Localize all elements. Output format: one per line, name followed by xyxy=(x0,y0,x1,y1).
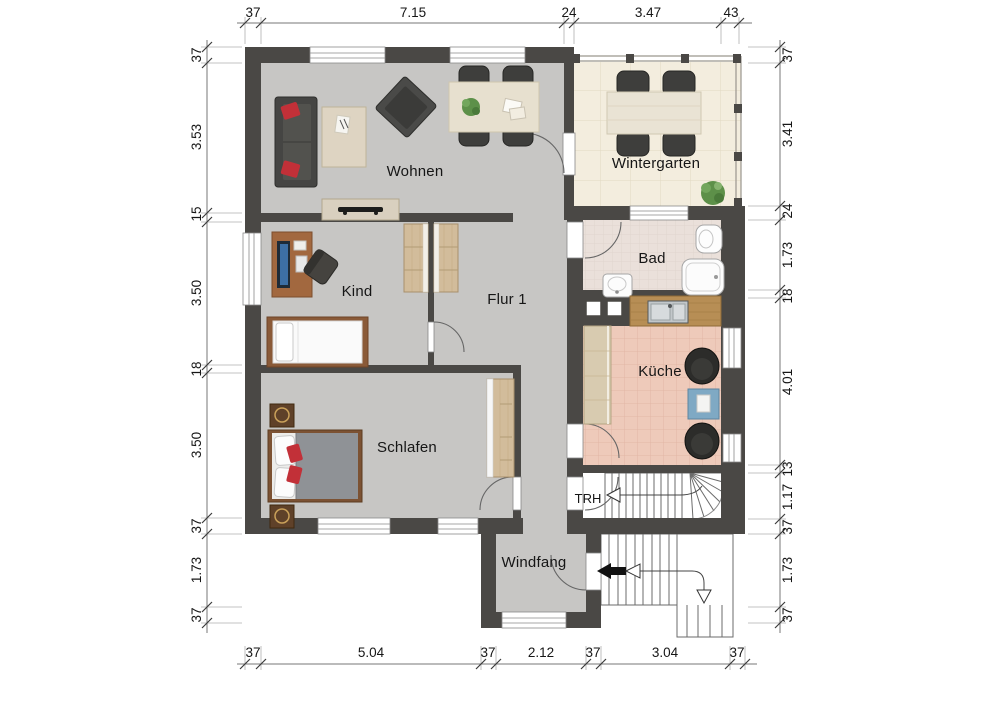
dim-right-5: 4.01 xyxy=(780,369,795,395)
dim-bottom-2: 37 xyxy=(480,645,495,660)
window-kueche-east-2 xyxy=(723,434,741,462)
dining-table xyxy=(449,82,539,132)
nightstand-top xyxy=(270,404,294,427)
window-bad-north xyxy=(630,206,688,220)
dim-top-0: 37 xyxy=(245,5,260,20)
room-label-bad: Bad xyxy=(638,250,665,267)
window-kind-west xyxy=(243,233,261,305)
flur-wardrobe-kind-side xyxy=(404,224,428,292)
wall-flur-east-1 xyxy=(567,206,583,222)
wall-wintergarten-lower xyxy=(564,175,574,206)
kitchen-side-table xyxy=(688,389,719,419)
wall-kind-flur-upper xyxy=(428,222,434,322)
dim-left-3: 3.50 xyxy=(189,280,204,306)
wall-south-segment xyxy=(496,518,523,534)
wall-flur-east-3 xyxy=(567,326,583,424)
wall-flur-east-2 xyxy=(567,258,583,290)
coffee-table xyxy=(322,107,366,167)
wall-flur-east-5 xyxy=(567,510,583,534)
dim-left-7: 1.73 xyxy=(189,557,204,583)
glass-post xyxy=(734,104,742,113)
dim-right-9: 1.73 xyxy=(780,557,795,583)
window-wohnen-north-1 xyxy=(310,47,385,63)
wall-south-trh xyxy=(567,518,745,534)
dim-left-8: 37 xyxy=(189,607,204,622)
window-schlafen-south-1 xyxy=(318,518,390,534)
room-label-kind: Kind xyxy=(342,283,373,300)
dim-labels-top: 37 7.15 24 3.47 43 xyxy=(245,5,738,20)
room-label-windfang: Windfang xyxy=(502,554,567,571)
glass-post xyxy=(734,198,742,206)
wall-windfang-south-left xyxy=(481,612,502,628)
kitchen-counter-west xyxy=(584,326,611,424)
window-windfang-south xyxy=(502,612,566,628)
bathroom-sink xyxy=(603,274,632,297)
bed-pillow xyxy=(276,323,293,361)
dim-right-8: 37 xyxy=(780,519,795,534)
wall-kind-flur-lower xyxy=(428,352,434,365)
dim-top-4: 43 xyxy=(723,5,738,20)
dim-bottom-6: 37 xyxy=(729,645,744,660)
glass-post xyxy=(733,54,741,63)
kids-bed xyxy=(267,317,368,367)
wall-wg-south-right xyxy=(688,206,745,220)
wall-schlafen-stub xyxy=(513,510,521,518)
window-wohnen-north-2 xyxy=(450,47,525,63)
window-kueche-east-1 xyxy=(723,328,741,368)
glass-post xyxy=(681,54,689,63)
wall-windfang-east-upper xyxy=(586,534,601,553)
shaft-left xyxy=(586,301,601,316)
dim-left-5: 3.50 xyxy=(189,432,204,458)
wintergarten-plant xyxy=(701,181,725,205)
kitchen-chair-1 xyxy=(685,348,719,384)
room-label-flur: Flur 1 xyxy=(487,291,527,308)
exterior-stairs xyxy=(601,534,733,637)
dim-left-4: 18 xyxy=(189,361,204,376)
nightstand-bottom xyxy=(270,505,294,528)
room-label-schlafen: Schlafen xyxy=(377,439,437,456)
flur-wardrobe-flur-side xyxy=(434,224,458,292)
bathtub xyxy=(682,259,724,295)
wall-windfang-west xyxy=(481,518,496,628)
glass-post xyxy=(572,54,580,63)
glass-post xyxy=(734,152,742,161)
dim-bottom-1: 5.04 xyxy=(358,645,385,660)
room-label-wohnen: Wohnen xyxy=(387,163,444,180)
double-bed xyxy=(268,430,362,502)
dim-left-6: 37 xyxy=(189,518,204,533)
kitchen-counter-north xyxy=(630,296,721,326)
floor-plan-drawing: Wohnen Wintergarten Bad Kind Flur 1 Küch… xyxy=(0,0,1000,701)
dim-right-1: 3.41 xyxy=(780,121,795,147)
dim-right-2: 24 xyxy=(780,203,795,219)
room-label-kueche: Küche xyxy=(638,363,682,380)
trh-stairs xyxy=(605,473,723,519)
dim-labels-left: 37 3.53 15 3.50 18 3.50 37 1.73 37 xyxy=(189,47,204,622)
schlafen-wardrobe xyxy=(487,379,514,477)
dim-top-1: 7.15 xyxy=(400,5,426,20)
kitchen-chair-2 xyxy=(685,423,719,459)
dim-bottom-4: 37 xyxy=(585,645,600,660)
dim-bottom-0: 37 xyxy=(245,645,260,660)
shaft-right xyxy=(607,301,622,316)
dim-right-6: 13 xyxy=(780,461,795,476)
dim-right-10: 37 xyxy=(780,607,795,622)
kids-desk xyxy=(272,232,312,297)
dim-top-2: 24 xyxy=(561,5,577,20)
dim-right-4: 18 xyxy=(780,288,795,303)
wall-kueche-trh xyxy=(567,465,745,473)
toilet xyxy=(696,225,722,253)
dim-labels-right: 37 3.41 24 1.73 18 4.01 13 1.17 37 1.73 … xyxy=(780,47,795,622)
floor-plan-page: Wohnen Wintergarten Bad Kind Flur 1 Küch… xyxy=(0,0,1000,701)
window-schlafen-south-2 xyxy=(438,518,478,534)
dim-left-2: 15 xyxy=(189,206,204,221)
dim-right-0: 37 xyxy=(780,47,795,62)
dim-left-1: 3.53 xyxy=(189,124,204,150)
glass-post xyxy=(626,54,634,63)
dim-right-7: 1.17 xyxy=(780,484,795,510)
dim-left-0: 37 xyxy=(189,47,204,62)
dim-bottom-5: 3.04 xyxy=(652,645,679,660)
wintergarten-table xyxy=(607,92,701,134)
dim-top-3: 3.47 xyxy=(635,5,661,20)
room-label-trh: TRH xyxy=(575,491,602,506)
wall-windfang-south-right xyxy=(566,612,601,628)
dim-right-3: 1.73 xyxy=(780,242,795,268)
bed-blanket xyxy=(296,433,358,499)
dim-labels-bottom: 37 5.04 37 2.12 37 3.04 37 xyxy=(245,645,744,660)
wall-east xyxy=(721,206,745,534)
sideboard xyxy=(322,199,399,220)
room-label-wintergarten: Wintergarten xyxy=(612,155,700,172)
dim-bottom-3: 2.12 xyxy=(528,645,554,660)
sofa xyxy=(275,97,317,187)
